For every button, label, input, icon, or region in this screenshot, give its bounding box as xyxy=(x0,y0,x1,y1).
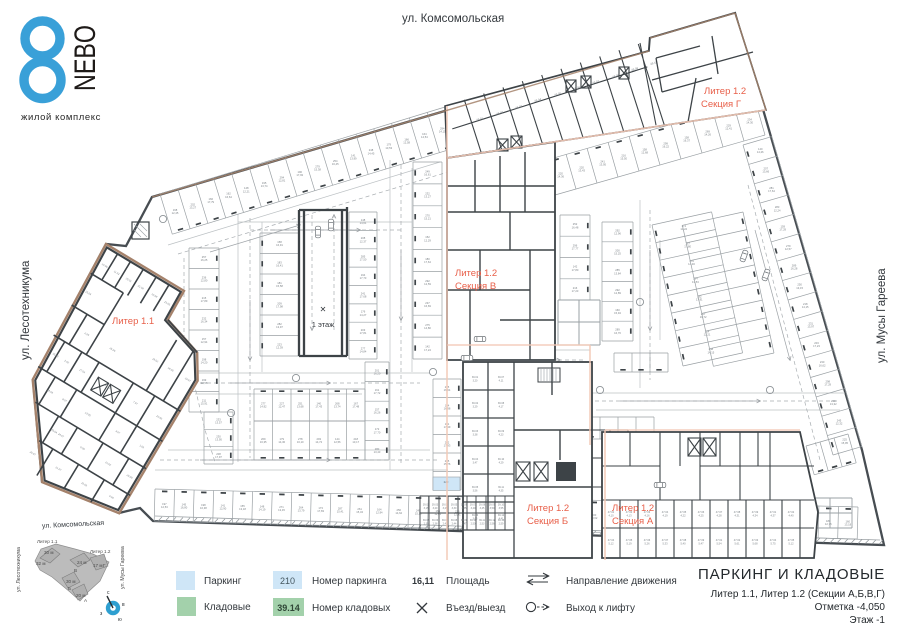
svg-text:13,79: 13,79 xyxy=(298,508,305,512)
svg-text:13,27: 13,27 xyxy=(424,195,431,199)
svg-text:Номер кладовых: Номер кладовых xyxy=(312,603,390,614)
svg-text:17,91: 17,91 xyxy=(696,298,703,302)
svg-text:47.03: 47.03 xyxy=(752,538,759,542)
svg-text:14,61: 14,61 xyxy=(360,221,367,225)
svg-text:30 м: 30 м xyxy=(44,550,54,555)
svg-text:12,59: 12,59 xyxy=(424,282,431,286)
svg-text:ю: ю xyxy=(118,617,122,623)
svg-text:17 м: 17 м xyxy=(93,563,103,568)
svg-text:✕: ✕ xyxy=(320,305,327,314)
svg-text:16,11: 16,11 xyxy=(412,576,434,586)
svg-text:39.14: 39.14 xyxy=(277,603,300,613)
svg-text:2,53: 2,53 xyxy=(480,523,485,526)
svg-text:12,94: 12,94 xyxy=(376,510,383,514)
svg-text:12,58: 12,58 xyxy=(201,381,208,385)
svg-text:30 м: 30 м xyxy=(66,579,76,584)
svg-text:24 м: 24 м xyxy=(77,560,87,565)
svg-text:39.01: 39.01 xyxy=(472,376,479,379)
svg-text:5,12: 5,12 xyxy=(788,542,794,546)
svg-text:14,26: 14,26 xyxy=(704,132,711,136)
svg-text:39.06: 39.06 xyxy=(432,519,439,522)
svg-text:12,32: 12,32 xyxy=(836,422,843,426)
svg-text:13,57: 13,57 xyxy=(215,420,222,424)
svg-text:47.06: 47.06 xyxy=(644,538,651,542)
svg-text:16,72: 16,72 xyxy=(700,315,707,319)
svg-text:14,20: 14,20 xyxy=(201,360,208,364)
svg-text:12,61: 12,61 xyxy=(434,512,441,516)
svg-text:47.08: 47.08 xyxy=(680,538,687,542)
svg-text:ул. Лесотехникума: ул. Лесотехникума xyxy=(20,260,32,360)
svg-text:16,35: 16,35 xyxy=(260,440,267,444)
svg-text:4,34: 4,34 xyxy=(752,514,758,518)
svg-text:5,19: 5,19 xyxy=(626,542,632,546)
svg-text:17,29: 17,29 xyxy=(779,228,786,232)
svg-text:39.02: 39.02 xyxy=(472,402,479,405)
svg-text:39.11: 39.11 xyxy=(479,519,486,522)
svg-text:39.09: 39.09 xyxy=(498,430,505,433)
svg-text:16,38: 16,38 xyxy=(200,506,207,510)
svg-text:4,37: 4,37 xyxy=(770,514,776,518)
svg-text:17,29: 17,29 xyxy=(824,383,831,387)
svg-text:14,36: 14,36 xyxy=(557,174,564,178)
svg-text:5,26: 5,26 xyxy=(644,542,650,546)
svg-text:5,54: 5,54 xyxy=(716,542,722,546)
svg-text:12,41: 12,41 xyxy=(725,126,732,130)
svg-text:39.08: 39.08 xyxy=(498,402,505,405)
svg-text:15,21: 15,21 xyxy=(424,216,431,220)
svg-text:47.01: 47.01 xyxy=(770,510,777,514)
svg-text:13,74: 13,74 xyxy=(334,405,341,409)
svg-text:4,35: 4,35 xyxy=(499,490,504,493)
svg-text:13,32: 13,32 xyxy=(830,402,837,406)
svg-text:12,90: 12,90 xyxy=(220,506,227,510)
svg-text:47.06: 47.06 xyxy=(698,510,705,514)
svg-text:39.07: 39.07 xyxy=(498,376,505,379)
svg-text:Секция Б: Секция Б xyxy=(527,516,568,527)
svg-text:14,46: 14,46 xyxy=(688,262,695,266)
svg-text:12,57: 12,57 xyxy=(785,247,792,251)
svg-text:17,23: 17,23 xyxy=(572,289,579,293)
svg-text:4,29: 4,29 xyxy=(499,462,504,465)
svg-text:2,44: 2,44 xyxy=(452,523,457,526)
svg-text:12,53: 12,53 xyxy=(161,505,168,509)
svg-text:39.05: 39.05 xyxy=(472,486,479,489)
svg-text:15,58: 15,58 xyxy=(276,284,283,288)
svg-text:14,84: 14,84 xyxy=(360,350,367,354)
svg-text:14,30: 14,30 xyxy=(278,440,285,444)
svg-text:4,28: 4,28 xyxy=(716,514,722,518)
svg-text:13,95: 13,95 xyxy=(215,438,222,442)
svg-text:16,91: 16,91 xyxy=(276,243,283,247)
svg-text:17,73: 17,73 xyxy=(360,276,367,280)
svg-text:4,40: 4,40 xyxy=(788,514,794,518)
svg-text:15,91: 15,91 xyxy=(201,401,208,405)
svg-text:5,75: 5,75 xyxy=(770,542,776,546)
svg-text:4,22: 4,22 xyxy=(680,514,686,518)
svg-text:жилой комплекс: жилой комплекс xyxy=(21,112,101,123)
svg-text:15,50: 15,50 xyxy=(620,156,627,160)
svg-text:13,95: 13,95 xyxy=(599,162,606,166)
svg-text:2,50: 2,50 xyxy=(471,523,476,526)
svg-text:Литер 1.1: Литер 1.1 xyxy=(112,316,154,327)
svg-text:13,53: 13,53 xyxy=(692,280,699,284)
svg-text:13,66: 13,66 xyxy=(762,170,769,174)
svg-text:3,38: 3,38 xyxy=(473,434,478,437)
svg-text:4,17: 4,17 xyxy=(499,406,504,409)
svg-text:4,25: 4,25 xyxy=(698,514,704,518)
svg-text:14,80: 14,80 xyxy=(424,326,431,330)
svg-text:3,56: 3,56 xyxy=(473,490,478,493)
svg-text:47.05: 47.05 xyxy=(788,538,795,542)
svg-text:13,15: 13,15 xyxy=(796,286,803,290)
svg-text:14,15: 14,15 xyxy=(708,350,715,354)
svg-text:ПАРКИНГ И КЛАДОВЫЕ: ПАРКИНГ И КЛАДОВЫЕ xyxy=(698,566,885,583)
svg-text:16,69: 16,69 xyxy=(424,304,431,308)
svg-text:12,96: 12,96 xyxy=(614,232,621,236)
svg-text:Номер паркинга: Номер паркинга xyxy=(312,576,387,587)
svg-text:4,11: 4,11 xyxy=(499,380,504,383)
svg-text:2,59: 2,59 xyxy=(499,523,504,526)
svg-text:15,41: 15,41 xyxy=(337,509,344,513)
svg-text:13,43: 13,43 xyxy=(578,168,585,172)
svg-text:13,43: 13,43 xyxy=(374,450,381,454)
svg-text:16,64: 16,64 xyxy=(225,195,232,199)
svg-text:13,45: 13,45 xyxy=(278,508,285,512)
svg-text:3,29: 3,29 xyxy=(473,406,478,409)
svg-text:ул. Комсомольская: ул. Комсомольская xyxy=(402,13,504,25)
svg-text:17,64: 17,64 xyxy=(424,260,431,264)
svg-text:2,47: 2,47 xyxy=(462,523,467,526)
svg-text:12,94: 12,94 xyxy=(201,340,208,344)
svg-text:16,10: 16,10 xyxy=(297,440,304,444)
svg-text:39.13: 39.13 xyxy=(498,519,505,522)
svg-text:14,24: 14,24 xyxy=(680,227,687,231)
svg-text:17,93: 17,93 xyxy=(296,173,303,177)
svg-text:3,30: 3,30 xyxy=(452,507,457,510)
svg-text:Литер 1.2: Литер 1.2 xyxy=(527,503,569,514)
svg-text:12,45: 12,45 xyxy=(172,211,179,215)
svg-text:47.09: 47.09 xyxy=(752,510,759,514)
svg-text:16,25: 16,25 xyxy=(201,258,208,262)
svg-text:17,83: 17,83 xyxy=(317,509,324,513)
svg-text:3,35: 3,35 xyxy=(462,507,467,510)
svg-text:2,35: 2,35 xyxy=(424,523,429,526)
svg-text:47.09: 47.09 xyxy=(698,538,705,542)
svg-text:13,74: 13,74 xyxy=(261,184,268,188)
svg-text:39.06: 39.06 xyxy=(472,514,479,517)
svg-text:Выход к лифту: Выход к лифту xyxy=(566,602,635,614)
svg-text:ул. Мусы Гареева: ул. Мусы Гареева xyxy=(876,268,888,363)
svg-text:3,40: 3,40 xyxy=(471,507,476,510)
svg-text:в: в xyxy=(122,602,125,608)
svg-text:17,68: 17,68 xyxy=(360,294,367,298)
svg-text:14,92: 14,92 xyxy=(260,405,267,409)
svg-text:13,84: 13,84 xyxy=(614,271,621,275)
svg-text:Литер 1.1: Литер 1.1 xyxy=(37,539,58,544)
svg-text:17,64: 17,64 xyxy=(768,189,775,193)
svg-text:Отметка -4,050: Отметка -4,050 xyxy=(815,602,886,613)
svg-text:1 этаж: 1 этаж xyxy=(312,320,334,329)
svg-text:17,24: 17,24 xyxy=(424,348,431,352)
svg-text:12,89: 12,89 xyxy=(614,291,621,295)
svg-text:Секция А: Секция А xyxy=(612,516,654,527)
svg-text:47.02: 47.02 xyxy=(734,538,741,542)
svg-text:39.08: 39.08 xyxy=(451,519,458,522)
svg-text:17,79: 17,79 xyxy=(207,200,214,204)
svg-text:17,97: 17,97 xyxy=(215,455,222,459)
svg-text:12,80: 12,80 xyxy=(201,278,208,282)
svg-text:13,99: 13,99 xyxy=(350,157,357,161)
svg-text:17,81: 17,81 xyxy=(360,331,367,335)
svg-text:47.05: 47.05 xyxy=(626,538,633,542)
svg-text:12,37: 12,37 xyxy=(360,239,367,243)
svg-text:13,27: 13,27 xyxy=(189,206,196,210)
svg-text:17,98: 17,98 xyxy=(276,304,283,308)
svg-text:47.04: 47.04 xyxy=(770,538,777,542)
svg-text:14,54: 14,54 xyxy=(421,135,428,139)
svg-text:Секция Г: Секция Г xyxy=(701,99,741,110)
svg-text:16,37: 16,37 xyxy=(683,138,690,142)
svg-text:5,12: 5,12 xyxy=(608,542,614,546)
svg-text:13,68: 13,68 xyxy=(297,405,304,409)
svg-text:39.11: 39.11 xyxy=(498,486,505,489)
svg-text:Этаж -1: Этаж -1 xyxy=(849,615,885,626)
svg-text:17,50: 17,50 xyxy=(360,258,367,262)
svg-text:12,68: 12,68 xyxy=(641,150,648,154)
svg-text:4,23: 4,23 xyxy=(499,434,504,437)
svg-text:16,28: 16,28 xyxy=(791,267,798,271)
svg-text:210: 210 xyxy=(280,576,295,586)
svg-text:16,41: 16,41 xyxy=(276,263,283,267)
svg-text:Литер 1.1, Литер 1.2 (Секции А: Литер 1.1, Литер 1.2 (Секции А,Б,В,Г) xyxy=(711,589,885,600)
svg-text:47.04: 47.04 xyxy=(662,510,669,514)
svg-text:15,38: 15,38 xyxy=(314,168,321,172)
svg-text:13,17: 13,17 xyxy=(352,440,359,444)
svg-text:14,26: 14,26 xyxy=(757,150,764,154)
svg-text:Въезд/выезд: Въезд/выезд xyxy=(446,603,505,614)
svg-text:5,68: 5,68 xyxy=(752,542,758,546)
svg-text:5,61: 5,61 xyxy=(734,542,740,546)
svg-text:16,20: 16,20 xyxy=(374,372,381,376)
svg-text:4,31: 4,31 xyxy=(734,514,740,518)
svg-text:39.03: 39.03 xyxy=(472,430,479,433)
svg-text:47.07: 47.07 xyxy=(662,538,669,542)
svg-text:В: В xyxy=(74,568,77,573)
svg-text:17,77: 17,77 xyxy=(572,247,579,251)
svg-text:14,72: 14,72 xyxy=(315,440,322,444)
svg-text:NEBO: NEBO xyxy=(69,25,102,91)
svg-text:14,15: 14,15 xyxy=(802,305,809,309)
svg-text:15,94: 15,94 xyxy=(614,311,621,315)
svg-text:12,29: 12,29 xyxy=(424,238,431,242)
svg-text:3,15: 3,15 xyxy=(424,507,429,510)
svg-text:17,70: 17,70 xyxy=(374,430,381,434)
svg-text:3,50: 3,50 xyxy=(490,507,495,510)
svg-text:Кладовые: Кладовые xyxy=(204,602,251,613)
svg-text:12,75: 12,75 xyxy=(825,522,832,526)
svg-text:15,34: 15,34 xyxy=(356,510,363,514)
svg-text:Литер 1.2: Литер 1.2 xyxy=(90,549,111,554)
svg-text:5,33: 5,33 xyxy=(662,542,668,546)
svg-text:39.12: 39.12 xyxy=(498,514,505,517)
svg-text:17,43: 17,43 xyxy=(315,405,322,409)
svg-text:13,53: 13,53 xyxy=(385,146,392,150)
svg-text:12,39: 12,39 xyxy=(276,345,283,349)
svg-text:13,18: 13,18 xyxy=(239,507,246,511)
svg-text:17,23: 17,23 xyxy=(813,344,820,348)
svg-text:16,76: 16,76 xyxy=(614,331,621,335)
svg-text:32 м: 32 м xyxy=(36,561,46,566)
svg-text:Литер 1.2: Литер 1.2 xyxy=(612,503,654,514)
svg-text:ул. Мусы Гареева: ул. Мусы Гареева xyxy=(120,546,126,589)
svg-text:2,38: 2,38 xyxy=(433,523,438,526)
svg-text:14,15: 14,15 xyxy=(439,130,446,134)
svg-text:4,19: 4,19 xyxy=(662,514,668,518)
svg-text:Б: Б xyxy=(68,586,71,591)
svg-text:3,45: 3,45 xyxy=(480,507,485,510)
svg-text:Направление движения: Направление движения xyxy=(566,576,677,587)
svg-text:12,21: 12,21 xyxy=(243,189,250,193)
svg-text:Площадь: Площадь xyxy=(446,576,490,587)
svg-text:Секция В: Секция В xyxy=(455,281,496,292)
svg-text:17,48: 17,48 xyxy=(352,405,359,409)
svg-text:5,40: 5,40 xyxy=(680,542,686,546)
svg-text:12,81: 12,81 xyxy=(279,178,286,182)
svg-text:12,47: 12,47 xyxy=(278,405,285,409)
svg-text:14,19: 14,19 xyxy=(259,507,266,511)
svg-text:13,97: 13,97 xyxy=(807,325,814,329)
svg-text:16,26: 16,26 xyxy=(374,411,381,415)
svg-text:12,24: 12,24 xyxy=(774,208,781,212)
svg-text:47.07: 47.07 xyxy=(716,510,723,514)
svg-text:12,58: 12,58 xyxy=(403,140,410,144)
svg-text:17,72: 17,72 xyxy=(374,391,381,395)
svg-text:17,89: 17,89 xyxy=(201,299,208,303)
svg-text:ул. Лесотехникума: ул. Лесотехникума xyxy=(16,547,22,592)
svg-text:3,20: 3,20 xyxy=(433,507,438,510)
svg-text:12,21: 12,21 xyxy=(704,333,711,337)
svg-text:39.10: 39.10 xyxy=(498,458,505,461)
svg-text:Паркинг: Паркинг xyxy=(204,576,242,587)
svg-text:3,47: 3,47 xyxy=(473,462,478,465)
svg-text:47.08: 47.08 xyxy=(734,510,741,514)
svg-text:13,18: 13,18 xyxy=(844,522,851,526)
svg-text:16,34: 16,34 xyxy=(201,319,208,323)
svg-text:14,27: 14,27 xyxy=(360,313,367,317)
svg-text:16,22: 16,22 xyxy=(662,144,669,148)
svg-text:16,48: 16,48 xyxy=(572,225,579,229)
svg-text:Литер 1.2: Литер 1.2 xyxy=(704,86,746,97)
svg-text:47.05: 47.05 xyxy=(680,510,687,514)
svg-text:16,61: 16,61 xyxy=(424,173,431,177)
svg-text:13,97: 13,97 xyxy=(276,325,283,329)
svg-text:16,80: 16,80 xyxy=(181,505,188,509)
svg-text:14,45: 14,45 xyxy=(368,151,375,155)
svg-text:14,64: 14,64 xyxy=(395,511,402,515)
svg-text:47.01: 47.01 xyxy=(716,538,723,542)
svg-text:12,56: 12,56 xyxy=(334,440,341,444)
svg-text:3,55: 3,55 xyxy=(499,507,504,510)
svg-text:3,20: 3,20 xyxy=(473,380,478,383)
svg-text:15,95: 15,95 xyxy=(841,441,848,445)
svg-text:15,25: 15,25 xyxy=(614,251,621,255)
svg-text:Литер 1.2: Литер 1.2 xyxy=(455,268,497,279)
svg-text:16,45: 16,45 xyxy=(332,162,339,166)
svg-text:2,56: 2,56 xyxy=(490,523,495,526)
svg-text:39.04: 39.04 xyxy=(472,458,479,461)
svg-text:5,47: 5,47 xyxy=(698,542,704,546)
svg-text:17,80: 17,80 xyxy=(684,245,691,249)
svg-text:47.02: 47.02 xyxy=(788,510,795,514)
svg-text:14,30: 14,30 xyxy=(746,120,753,124)
svg-text:47.04: 47.04 xyxy=(608,538,615,542)
svg-text:17,80: 17,80 xyxy=(572,268,579,272)
svg-text:16,62: 16,62 xyxy=(819,363,826,367)
